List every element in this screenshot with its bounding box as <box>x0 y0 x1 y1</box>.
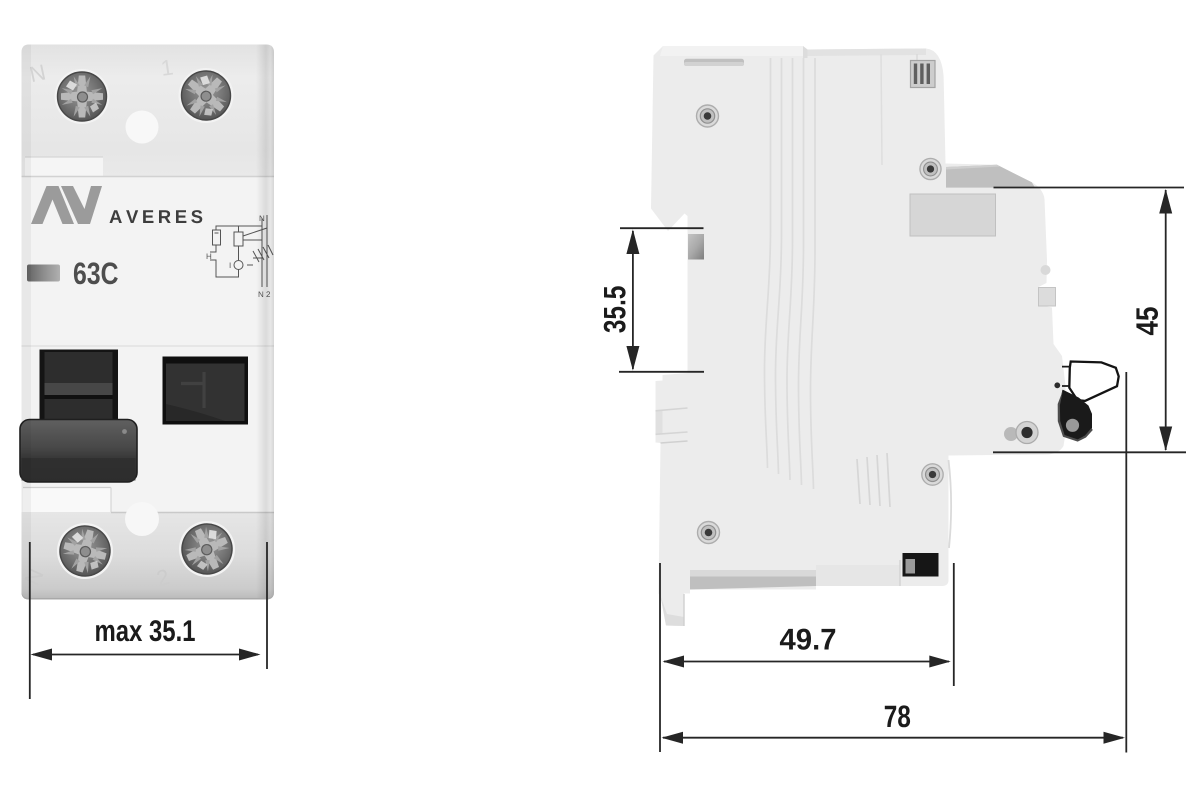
svg-text:H: H <box>206 252 212 261</box>
svg-text:I: I <box>229 261 231 270</box>
